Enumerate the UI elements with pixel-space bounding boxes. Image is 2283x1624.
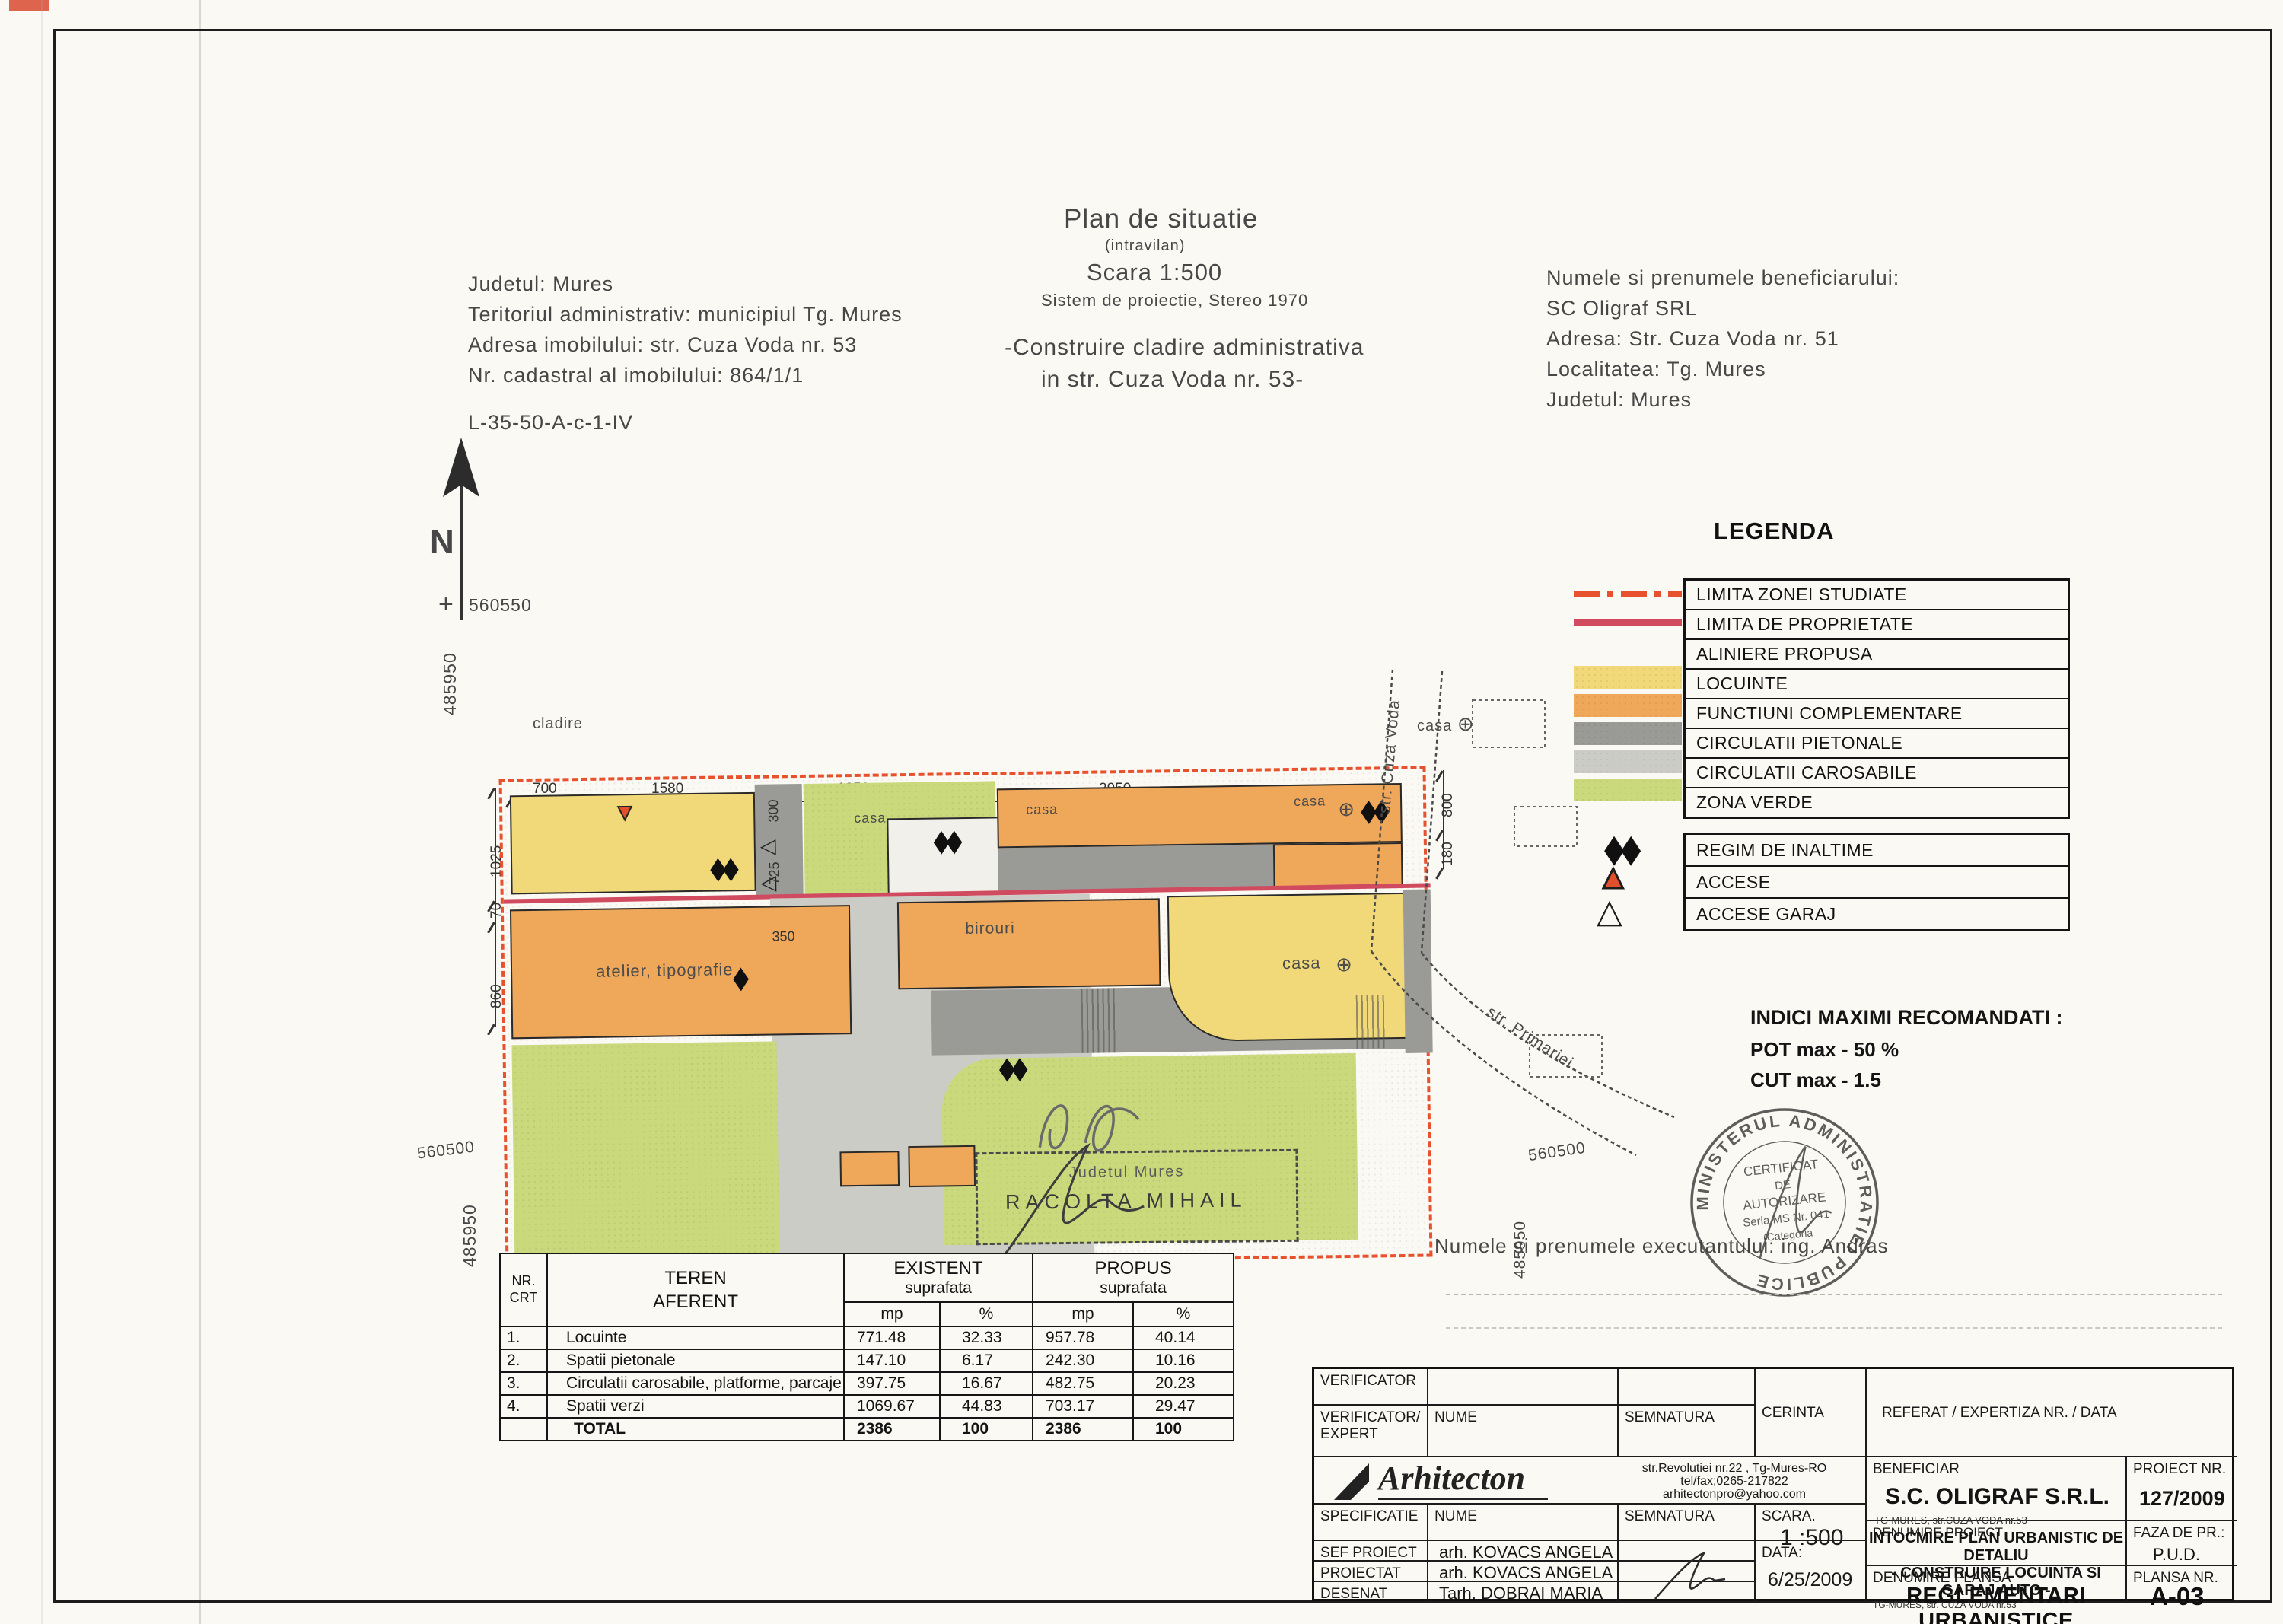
verificator-cell: VERIFICATOR [1314,1369,1428,1406]
benef-line1: Numele si prenumele beneficiarului: [1546,266,1899,290]
table-row: 4. Spatii verzi 1069.67 44.83 703.17 29.… [500,1395,1234,1418]
scan-smudge-red [9,0,49,11]
adresa-line: Adresa imobilului: str. Cuza Voda nr. 53 [468,333,857,357]
nume-header-cell: NUME [1428,1406,1619,1457]
sub-mp-1: mp [844,1302,940,1326]
benef-line2: SC Oligraf SRL [1546,297,1698,320]
coord-label-485950-left-bottom: 485950 [460,1204,480,1267]
data-value: 6/25/2009 [1762,1562,1865,1591]
data-cell: DATA: 6/25/2009 [1756,1541,1867,1603]
col-propus: PROPUSsuprafata [1033,1253,1234,1302]
referat-cell: REFERAT / EXPERTIZA NR. / DATA [1867,1369,2237,1457]
arhitecton-logo-triangle [1331,1462,1374,1501]
scara-cell: SCARA. 1 :500 [1756,1505,1867,1541]
sub-mp-2: mp [1033,1302,1133,1326]
dim-line-left: 1025 70 860 [495,788,496,1027]
sef-proiect-cell: SEF PROIECT [1314,1541,1428,1562]
legend-row-limita-prop: LIMITA DE PROPRIETATE [1686,610,2068,640]
legend-title: LEGENDA [1714,517,1835,545]
regim-inaltime-diamond-4: ◆ [733,962,746,993]
cerinta-cell: CERINTA [1756,1369,1867,1457]
legend-acces-garaj-icon: △ [1597,892,1622,931]
stamp-l1: CERTIFICAT [1743,1157,1819,1179]
sef-name-cell: arh. KOVACS ANGELA [1428,1541,1619,1562]
coord-label-485950-left: 485950 [440,652,460,715]
casa-label-2: casa [1026,801,1058,818]
areas-table: NR.CRT TERENAFERENT EXISTENTsuprafata PR… [499,1253,1234,1441]
table-row: 2. Spatii pietonale 147.10 6.17 242.30 1… [500,1349,1234,1372]
denumire-proiect-cell: DENUMIRE PROIECT INTOCMIRE PLAN URBANIST… [1867,1521,2127,1566]
indici-cut: CUT max - 1.5 [1750,1068,1881,1092]
legend-acces-icon: ▲ [1597,858,1630,896]
denumire-plansa-cell: DENUMIRE PLANSA REGLEMENTARI URBANISTICE [1867,1566,2127,1603]
dim-350: 350 [772,928,794,944]
stairs-hatch-1 [1081,988,1116,1053]
benef-line3: Adresa: Str. Cuza Voda nr. 51 [1546,327,1839,351]
swatch-zona-verde [1574,779,1682,801]
map-sheet-code: L-35-50-A-c-1-IV [468,411,633,435]
green-zone-bottom-left [511,1041,779,1266]
plansa-nr-cell: PLANSA NR. A-03 [2127,1566,2237,1603]
dim-725: 725 [766,861,782,884]
proiect-nr-value: 127/2009 [2127,1478,2237,1511]
legend-symbol-table: REGIM DE INALTIME ACCESE ACCESE GARAJ [1683,833,2070,931]
benef-line5: Judetul: Mures [1546,388,1692,412]
birouri-label: birouri [965,919,1015,938]
coord-label-560550: 560550 [469,595,532,616]
title-block: VERIFICATOR VERIFICATOR/EXPERT NUME SEMN… [1312,1367,2234,1601]
project-name-line2: in str. Cuza Voda nr. 53- [1041,367,1304,393]
plan-title: Plan de situatie [1064,204,1258,234]
beneficiar-cell: BENEFICIAR S.C. OLIGRAF S.R.L. TG-MURES,… [1867,1457,2127,1521]
verificator-nume-cell [1428,1369,1619,1406]
cladire-label: cladire [533,715,583,733]
table-total-row: TOTAL 2386 100 2386 100 [500,1418,1234,1441]
verificator-expert-cell: VERIFICATOR/EXPERT [1314,1406,1428,1457]
plan-subtitle: (intravilan) [1105,237,1185,255]
legend-row-accese: ACCESE [1686,867,2068,899]
swatch-pietonale [1574,722,1682,745]
table-row: 1. Locuinte 771.48 32.33 957.78 40.14 [500,1326,1234,1349]
verificator-semn-cell [1619,1369,1756,1406]
teritoriu-line: Teritoriul administrativ: municipiul Tg.… [468,303,903,326]
legend-row-locuinte: LOCUINTE [1686,670,2068,699]
arhitecton-logo-text: Arhitecton [1378,1459,1548,1500]
swatch-limita-prop [1574,619,1682,626]
acces-garaj-triangle-1: ◁ [760,834,776,858]
cadastral-line: Nr. cadastral al imobilului: 864/1/1 [468,364,804,387]
building-birouri [897,898,1161,989]
indici-pot: POT max - 50 % [1750,1038,1899,1062]
faza-cell: FAZA DE PR.: P.U.D. [2127,1521,2237,1566]
legend-table: LIMITA ZONEI STUDIATE LIMITA DE PROPRIET… [1683,578,2070,819]
faza-value: P.U.D. [2127,1542,2237,1565]
dashed-separator-1 [1446,1294,2222,1295]
logo-cell: Arhitecton str.Revolutiei nr.22 , Tg-Mur… [1314,1457,1867,1505]
dim-300: 300 [766,799,782,822]
specificatie-cell: SPECIFICATIE [1314,1505,1428,1541]
legend-row-carosabile: CIRCULATII CAROSABILE [1686,759,2068,788]
scan-edge-line [41,0,43,1624]
nume2-cell: NUME [1428,1505,1619,1541]
semnatura-header-cell: SEMNATURA [1619,1406,1756,1457]
north-label: N [430,524,455,562]
table-row: 3. Circulatii carosabile, platforme, par… [500,1372,1234,1395]
legend-row-pietonale: CIRCULATII PIETONALE [1686,729,2068,759]
atelier-label: atelier, tipografie [596,960,734,982]
semnatura2-cell: SEMNATURA [1619,1505,1756,1541]
legend-row-accese-garaj: ACCESE GARAJ [1686,899,2068,929]
logo-address-2: tel/fax;0265-217822 [1613,1475,1856,1488]
judet-line: Judetul: Mures [468,272,613,296]
logo-address-3: arhitectonpro@yahoo.com [1613,1488,1856,1501]
sub-pct-1: % [940,1302,1033,1326]
project-name-line1: -Construire cladire administrativa [1005,335,1364,361]
regim-inaltime-diamonds-5: ◆◆ [999,1052,1025,1084]
titleblock-signature [1640,1550,1746,1603]
denumire-plansa-value: REGLEMENTARI URBANISTICE [1867,1584,2125,1624]
round-certification-stamp: MINISTERUL ADMINISTRATIEI PUBLICE CERTIF… [1671,1086,1898,1320]
plan-scale: Scara 1:500 [1087,259,1222,286]
benef-line4: Localitatea: Tg. Mures [1546,358,1766,381]
legend-row-aliniere: ALINIERE PROPUSA [1686,640,2068,670]
dashed-separator-2 [1446,1327,2222,1329]
surveyor-stamp-box: Judetul Mures RACOLTA MIHAIL [975,1149,1298,1245]
swatch-functiuni [1574,694,1682,717]
proiectat-name-cell: arh. KOVACS ANGELA [1428,1562,1619,1582]
swatch-carosabile [1574,750,1682,773]
proiectat-cell: PROIECTAT [1314,1562,1428,1582]
scanned-site-plan-sheet: Judetul: Mures Teritoriul administrativ:… [0,0,2283,1624]
shed-1 [839,1151,900,1186]
regim-inaltime-diamonds-3: ◆◆ [933,825,959,856]
sub-pct-2: % [1133,1302,1234,1326]
swatch-locuinte [1574,666,1682,689]
acces-triangle-icon: ▼ [613,800,636,826]
desenat-name-cell: Tarh. DOBRAI MARIA [1428,1582,1619,1603]
proiect-nr-cell: PROIECT NR. 127/2009 [2127,1457,2237,1521]
denumire-proiect-1: INTOCMIRE PLAN URBANISTIC DE DETALIU [1867,1530,2125,1565]
casa-label-1: casa [854,810,886,826]
plan-projection: Sistem de proiectie, Stereo 1970 [1041,291,1308,310]
beneficiar-name: S.C. OLIGRAF S.R.L. [1867,1478,2125,1510]
col-teren-aferent: TERENAFERENT [547,1253,844,1326]
legend-row-limita-zonei: LIMITA ZONEI STUDIATE [1686,581,2068,610]
indici-title: INDICI MAXIMI RECOMANDATI : [1750,1006,2062,1030]
legend-row-regim: REGIM DE INALTIME [1686,835,2068,867]
col-existent: EXISTENTsuprafata [844,1253,1033,1302]
desenat-cell: DESENAT [1314,1582,1428,1603]
legend-row-zona-verde: ZONA VERDE [1686,788,2068,817]
walkway-top-right [998,844,1275,893]
swatch-limita-zonei [1574,591,1682,597]
logo-address-1: str.Revolutiei nr.22 , Tg-Mures-RO [1613,1462,1856,1475]
legend-row-functiuni: FUNCTIUNI COMPLEMENTARE [1686,699,2068,729]
col-nr-crt: NR.CRT [500,1253,547,1326]
regim-inaltime-diamonds-1: ◆◆ [710,852,736,884]
grid-cross-icon: + [438,590,454,619]
